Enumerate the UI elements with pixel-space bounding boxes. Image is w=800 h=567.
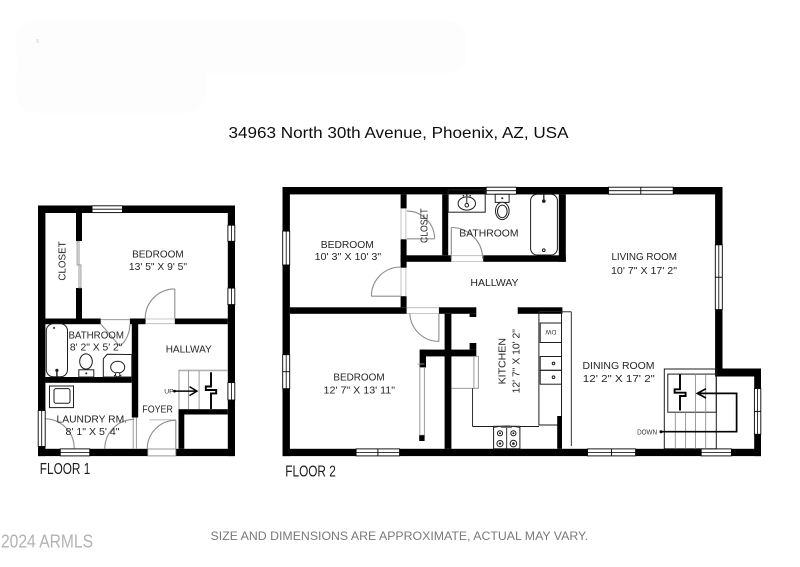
svg-text:DINING ROOM: DINING ROOM — [583, 361, 655, 372]
svg-text:8' 2" X 5' 2": 8' 2" X 5' 2" — [70, 342, 123, 353]
svg-text:DOWN: DOWN — [637, 428, 657, 437]
svg-text:LIVING ROOM: LIVING ROOM — [611, 252, 677, 263]
svg-text:10' 7" X 17' 2": 10' 7" X 17' 2" — [611, 266, 677, 277]
svg-text:DW: DW — [545, 328, 557, 335]
svg-text:BEDROOM: BEDROOM — [333, 373, 384, 384]
svg-text:CLOSET: CLOSET — [57, 241, 68, 280]
svg-text:12' 7" X 13' 11": 12' 7" X 13' 11" — [324, 386, 396, 397]
svg-text:12' 2" X 17' 2": 12' 2" X 17' 2" — [583, 374, 655, 385]
svg-text:12' 7" X 10' 2": 12' 7" X 10' 2" — [512, 329, 523, 394]
svg-text:KITCHEN: KITCHEN — [497, 338, 508, 384]
svg-text:BATHROOM: BATHROOM — [459, 228, 518, 239]
svg-text:UP: UP — [164, 389, 174, 396]
svg-text:SIZE AND DIMENSIONS ARE APPROX: SIZE AND DIMENSIONS ARE APPROXIMATE, ACT… — [211, 529, 589, 543]
svg-text:FLOOR 1: FLOOR 1 — [40, 461, 91, 478]
svg-text:LAUNDRY RM.: LAUNDRY RM. — [57, 415, 128, 426]
svg-text:FLOOR 2: FLOOR 2 — [285, 463, 336, 480]
svg-text:10' 3" X 10' 3": 10' 3" X 10' 3" — [315, 252, 382, 263]
svg-text:34963 North 30th Avenue, Phoen: 34963 North 30th Avenue, Phoenix, AZ, US… — [229, 125, 569, 142]
svg-text:2024 ARMLS: 2024 ARMLS — [1, 531, 93, 551]
svg-text:HALLWAY: HALLWAY — [166, 344, 212, 355]
svg-text:CLOSET: CLOSET — [419, 208, 430, 243]
svg-text:BEDROOM: BEDROOM — [132, 249, 184, 260]
svg-text:FOYER: FOYER — [142, 404, 173, 415]
svg-text:13' 5" X 9' 5": 13' 5" X 9' 5" — [129, 262, 187, 273]
svg-text:8' 1" X 5' 4": 8' 1" X 5' 4" — [66, 427, 120, 438]
svg-text:BATHROOM: BATHROOM — [68, 330, 124, 341]
svg-text:HALLWAY: HALLWAY — [470, 278, 518, 289]
svg-text:BEDROOM: BEDROOM — [321, 240, 374, 251]
